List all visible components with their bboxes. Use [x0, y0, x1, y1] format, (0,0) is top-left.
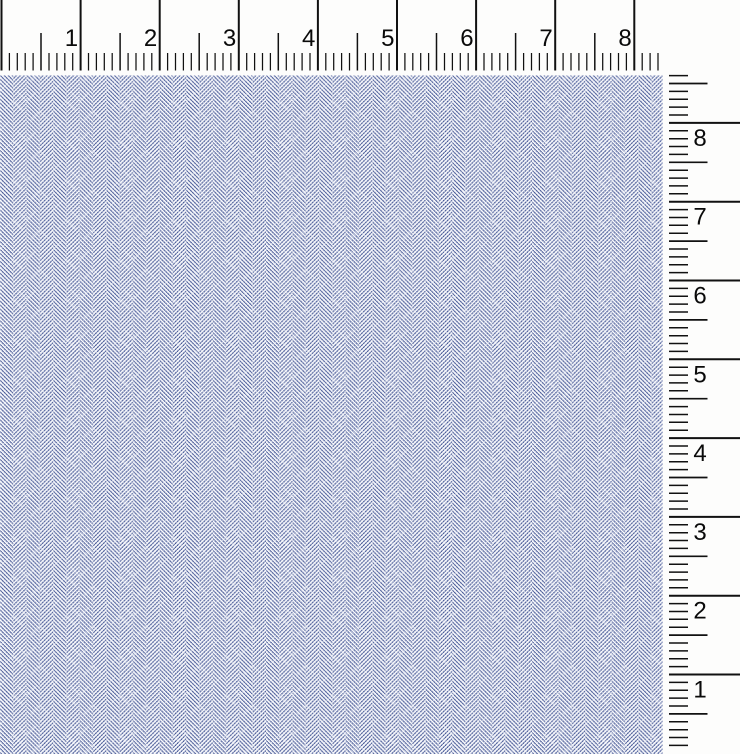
svg-text:5: 5: [381, 25, 394, 52]
svg-text:7: 7: [539, 25, 552, 52]
svg-text:2: 2: [693, 598, 706, 625]
svg-text:1: 1: [65, 25, 78, 52]
svg-text:7: 7: [693, 204, 706, 231]
svg-text:4: 4: [693, 440, 706, 467]
svg-text:1: 1: [693, 677, 706, 704]
svg-text:2: 2: [144, 25, 157, 52]
svg-text:3: 3: [693, 519, 706, 546]
svg-text:3: 3: [223, 25, 236, 52]
svg-text:8: 8: [693, 125, 706, 152]
svg-text:5: 5: [693, 361, 706, 388]
svg-text:8: 8: [618, 25, 631, 52]
svg-text:4: 4: [302, 25, 315, 52]
svg-text:6: 6: [693, 283, 706, 310]
svg-text:6: 6: [460, 25, 473, 52]
